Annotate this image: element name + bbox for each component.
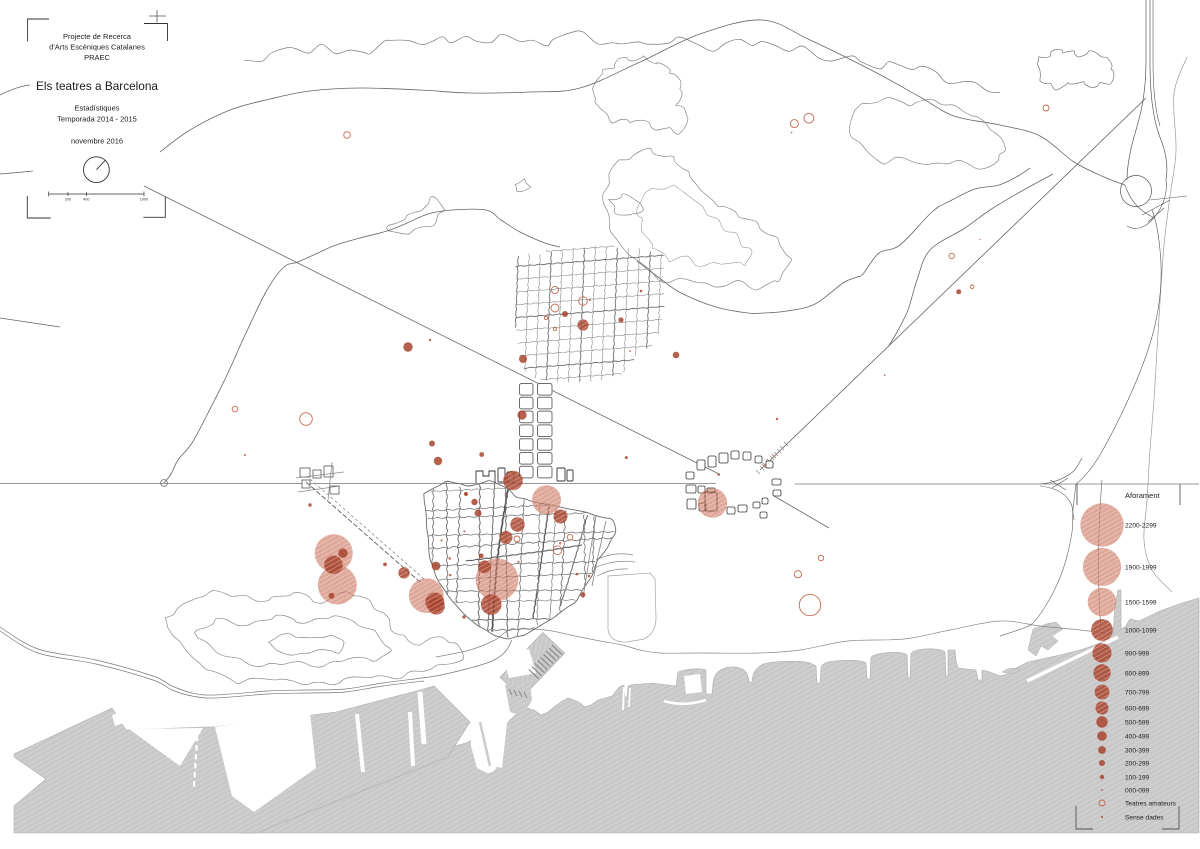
svg-text:Els teatres a Barcelona: Els teatres a Barcelona [36, 79, 158, 93]
svg-text:600-699: 600-699 [1125, 705, 1150, 712]
svg-text:400: 400 [83, 198, 89, 202]
svg-text:Temporada 2014 - 2015: Temporada 2014 - 2015 [57, 115, 137, 124]
svg-text:900-999: 900-999 [1125, 650, 1150, 657]
svg-text:1500-1599: 1500-1599 [1125, 599, 1157, 606]
svg-text:Estadístiques: Estadístiques [74, 104, 119, 113]
svg-text:800-899: 800-899 [1125, 670, 1150, 677]
svg-text:200: 200 [65, 198, 71, 202]
svg-text:Teatres amateurs: Teatres amateurs [1125, 800, 1177, 807]
svg-text:PRAEC: PRAEC [84, 53, 110, 62]
svg-text:200-299: 200-299 [1125, 760, 1150, 767]
svg-text:Sense dades: Sense dades [1125, 814, 1164, 821]
svg-text:500-599: 500-599 [1125, 719, 1150, 726]
svg-text:novembre 2016: novembre 2016 [71, 137, 123, 146]
svg-text:d'Arts Escèniques Catalanes: d'Arts Escèniques Catalanes [49, 43, 145, 52]
svg-text:1900-1999: 1900-1999 [1125, 564, 1157, 571]
svg-text:400-499: 400-499 [1125, 733, 1150, 740]
svg-text:Projecte de Recerca: Projecte de Recerca [63, 32, 132, 41]
svg-text:300-399: 300-399 [1125, 747, 1150, 754]
svg-text:100-199: 100-199 [1125, 774, 1150, 781]
svg-text:Aforament: Aforament [1125, 491, 1161, 500]
svg-text:000-099: 000-099 [1125, 787, 1150, 794]
svg-text:700-799: 700-799 [1125, 689, 1150, 696]
svg-text:1000-1099: 1000-1099 [1125, 627, 1157, 634]
svg-text:2200-2299: 2200-2299 [1125, 522, 1157, 529]
svg-text:1000: 1000 [140, 198, 148, 202]
